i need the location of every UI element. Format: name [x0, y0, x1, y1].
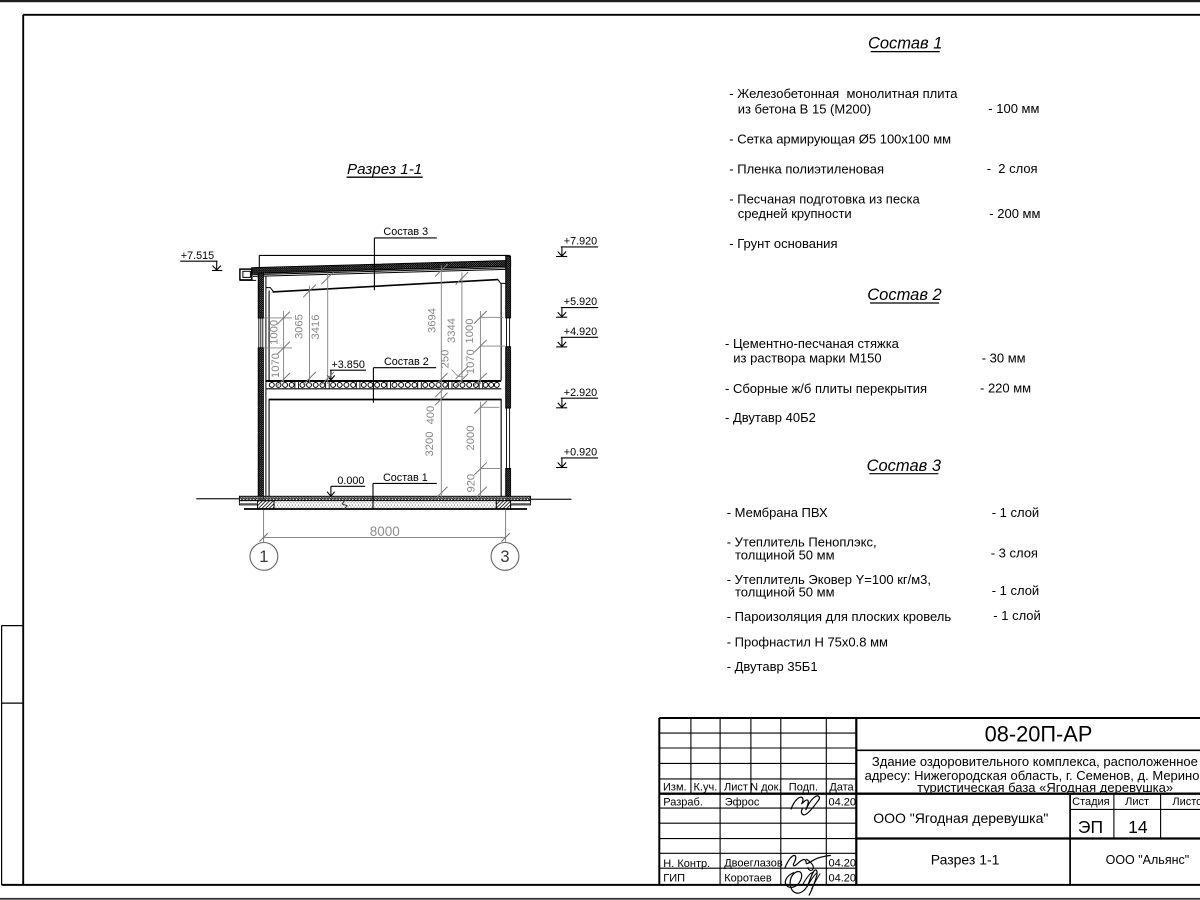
- svg-text:Двоеглазов: Двоеглазов: [724, 858, 783, 870]
- svg-text:Состав 2: Состав 2: [867, 286, 941, 304]
- svg-text:08-20П-АР: 08-20П-АР: [985, 721, 1093, 746]
- svg-text:- 2 слоя: - 2 слоя: [987, 161, 1038, 176]
- svg-text:- Пленка полиэтиленовая: - Пленка полиэтиленовая: [729, 162, 884, 177]
- svg-text:Дата: Дата: [829, 781, 854, 793]
- svg-text:+2.920: +2.920: [564, 387, 597, 399]
- svg-text:- 30 мм: - 30 мм: [982, 351, 1026, 366]
- svg-text:1: 1: [259, 548, 268, 566]
- svg-text:Состав 1: Состав 1: [868, 35, 942, 53]
- svg-text:Эфрос: Эфрос: [725, 796, 760, 808]
- svg-text:Состав 2: Состав 2: [384, 356, 429, 368]
- svg-text:Здание оздоровительного компле: Здание оздоровительного комплекса, распо…: [872, 754, 1200, 769]
- svg-text:- Железобетонная монолитная п: - Железобетонная монолитная плита: [729, 86, 958, 101]
- svg-text:толщиной 50 мм: толщиной 50 мм: [735, 548, 835, 563]
- svg-text:Н. Контр.: Н. Контр.: [663, 858, 710, 870]
- svg-text:14: 14: [1128, 817, 1148, 837]
- svg-text:N док.: N док.: [750, 782, 781, 794]
- svg-text:- 220 мм: - 220 мм: [980, 381, 1031, 396]
- svg-text:3200: 3200: [424, 432, 436, 457]
- svg-text:- Песчаная подготовка из песка: - Песчаная подготовка из песка: [729, 192, 920, 207]
- svg-text:3: 3: [500, 548, 509, 566]
- svg-text:- Сетка армирующая Ø5 100х100: - Сетка армирующая Ø5 100х100 мм: [729, 132, 951, 147]
- svg-text:толщиной 50 мм: толщиной 50 мм: [735, 585, 835, 600]
- svg-text:8000: 8000: [370, 524, 400, 539]
- svg-text:- Двутавр 35Б1: - Двутавр 35Б1: [727, 659, 818, 674]
- svg-text:из раствора марки М150: из раствора марки М150: [733, 351, 881, 366]
- svg-text:1070: 1070: [465, 349, 477, 374]
- svg-text:Коротаев: Коротаев: [724, 872, 772, 884]
- svg-text:- Мембрана ПВХ: - Мембрана ПВХ: [727, 505, 828, 520]
- svg-text:3694: 3694: [426, 308, 438, 333]
- svg-text:Состав 1: Состав 1: [383, 472, 428, 484]
- svg-text:- Сборные ж/б плиты перекрытия: - Сборные ж/б плиты перекрытия: [725, 381, 927, 396]
- svg-text:- 1 слой: - 1 слой: [993, 608, 1041, 623]
- svg-text:+5.920: +5.920: [564, 296, 597, 308]
- svg-text:04.20: 04.20: [829, 796, 857, 808]
- svg-text:1070: 1070: [270, 353, 282, 378]
- svg-text:- 3 слоя: - 3 слоя: [991, 546, 1038, 561]
- svg-text:- 1 слой: - 1 слой: [992, 583, 1040, 598]
- svg-text:ООО "Ягодная деревушка": ООО "Ягодная деревушка": [873, 810, 1048, 826]
- svg-text:1000: 1000: [464, 319, 476, 344]
- svg-text:из бетона В 15 (М200): из бетона В 15 (М200): [738, 101, 872, 116]
- svg-text:Стадия: Стадия: [1072, 796, 1110, 808]
- svg-text:Подп.: Подп.: [789, 782, 818, 794]
- svg-text:Листов: Листов: [1172, 796, 1200, 808]
- svg-text:1000: 1000: [269, 320, 281, 345]
- svg-text:400: 400: [425, 406, 437, 425]
- svg-text:Разрез 1-1: Разрез 1-1: [347, 161, 422, 178]
- svg-text:- Цементно-песчаная стяжка: - Цементно-песчаная стяжка: [725, 336, 900, 351]
- svg-text:0.000: 0.000: [337, 475, 364, 487]
- svg-text:- Грунт основания: - Грунт основания: [729, 236, 837, 251]
- svg-text:04.20: 04.20: [829, 857, 857, 869]
- svg-text:Разраб.: Разраб.: [663, 797, 703, 809]
- svg-text:ГИП: ГИП: [663, 873, 685, 885]
- svg-text:+3.850: +3.850: [332, 359, 365, 371]
- svg-text:04.20: 04.20: [829, 872, 857, 884]
- svg-text:- 100 мм: - 100 мм: [988, 101, 1039, 116]
- svg-text:- Профнастил Н 75х0.8 мм: - Профнастил Н 75х0.8 мм: [727, 635, 888, 650]
- svg-text:Состав 3: Состав 3: [383, 226, 428, 238]
- svg-text:- Пароизоляция для плоских кро: - Пароизоляция для плоских кровель: [727, 609, 952, 624]
- svg-text:Разрез 1-1: Разрез 1-1: [931, 852, 1000, 868]
- svg-text:туристическая база «Ягодная де: туристическая база «Ягодная деревушка»: [917, 780, 1173, 795]
- svg-text:средней крупности: средней крупности: [738, 206, 852, 221]
- svg-text:Состав 3: Состав 3: [867, 457, 942, 475]
- svg-text:К.уч.: К.уч.: [694, 781, 718, 793]
- svg-text:+4.920: +4.920: [564, 326, 597, 338]
- svg-text:- 200 мм: - 200 мм: [989, 206, 1040, 221]
- svg-text:+7.515: +7.515: [181, 250, 214, 262]
- svg-text:2000: 2000: [465, 426, 477, 451]
- svg-text:Лист: Лист: [724, 781, 748, 793]
- svg-text:3344: 3344: [446, 318, 458, 343]
- svg-text:920: 920: [465, 474, 477, 493]
- svg-text:Лист: Лист: [1125, 796, 1149, 808]
- svg-text:+7.920: +7.920: [564, 236, 597, 248]
- svg-text:Изм.: Изм.: [663, 781, 687, 793]
- svg-text:- 1 слой: - 1 слой: [992, 505, 1040, 520]
- svg-text:ООО "Альянс": ООО "Альянс": [1106, 853, 1190, 867]
- svg-text:3416: 3416: [310, 315, 322, 340]
- svg-text:ЭП: ЭП: [1078, 817, 1103, 837]
- svg-text:3065: 3065: [293, 314, 305, 339]
- svg-text:- Двутавр 40Б2: - Двутавр 40Б2: [725, 410, 816, 425]
- svg-text:250: 250: [439, 350, 451, 369]
- svg-text:+0.920: +0.920: [564, 447, 597, 459]
